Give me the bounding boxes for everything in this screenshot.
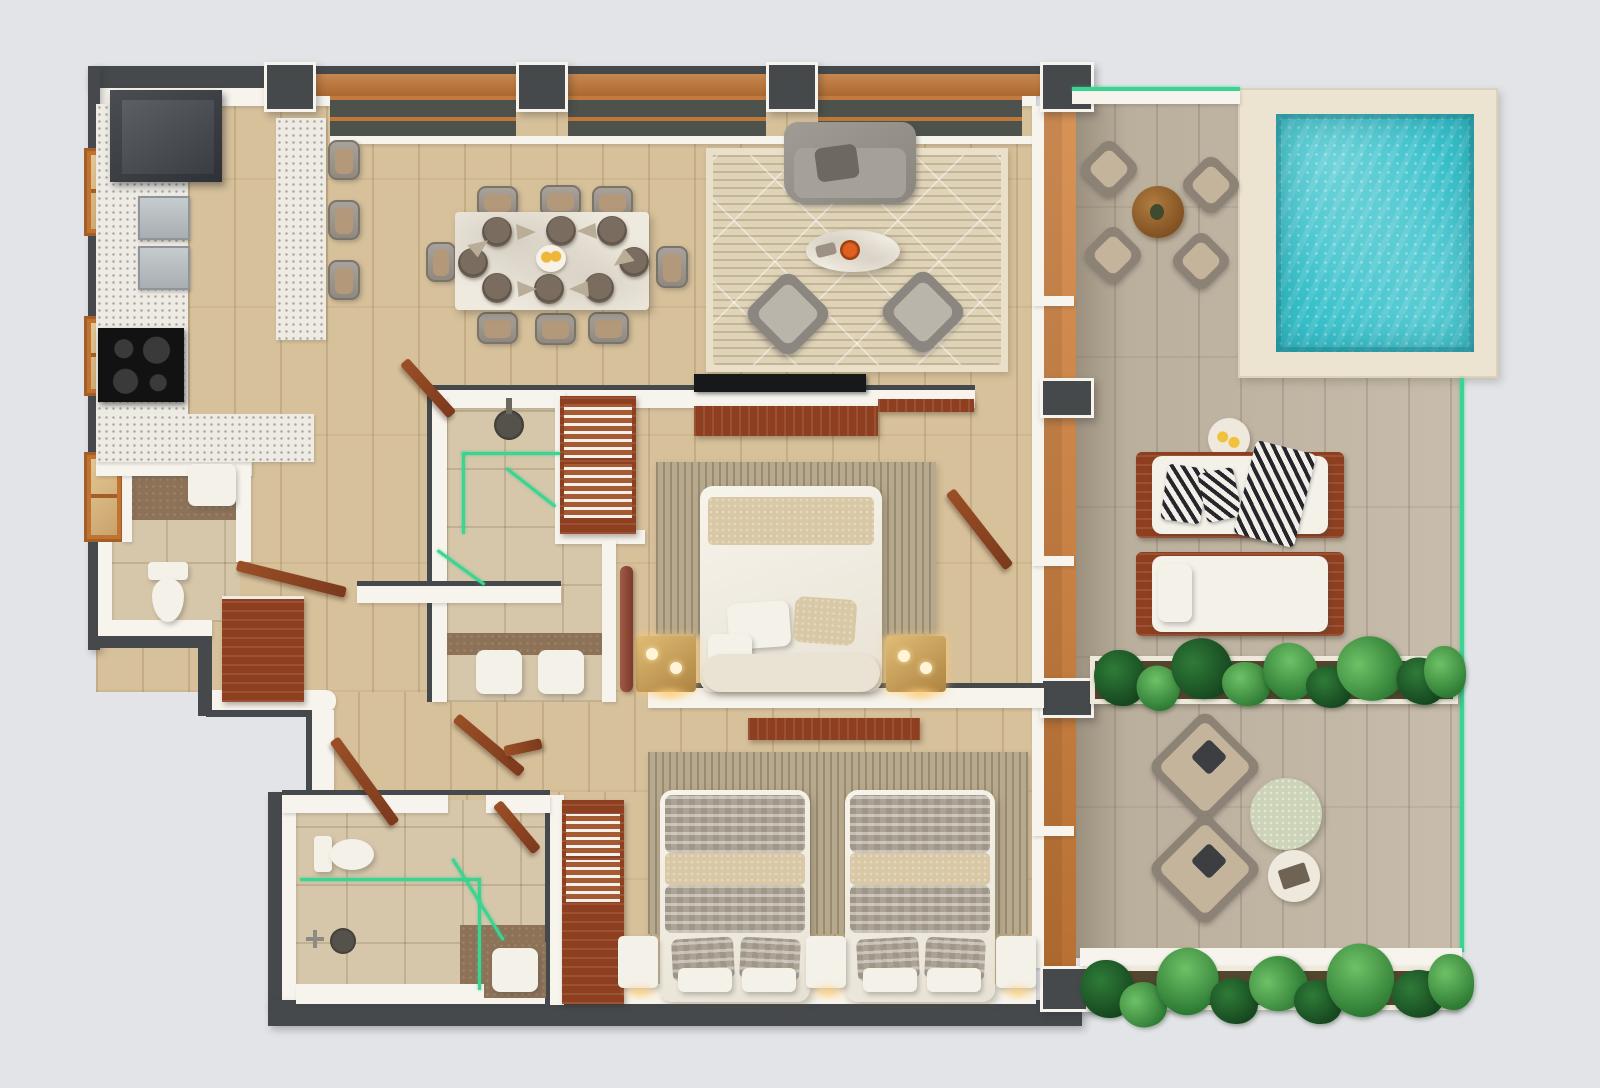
nightstand-lamp xyxy=(806,936,846,988)
wall-bath2-left-inner xyxy=(282,798,296,1002)
shower-head xyxy=(494,410,524,440)
lamp-glow xyxy=(808,984,848,1000)
floor-plan-render xyxy=(0,0,1600,1088)
twin-bed-cushion xyxy=(678,968,732,992)
dining-chair xyxy=(426,242,456,282)
vanity-sink xyxy=(476,650,522,694)
master-bed-throw xyxy=(708,497,874,545)
place-setting xyxy=(534,274,564,304)
divider-transom-1 xyxy=(1032,296,1074,306)
dining-chair xyxy=(535,313,576,345)
bath2-glass xyxy=(478,878,481,990)
wall-powder-bottom-edge xyxy=(88,636,212,648)
bath2-glass xyxy=(300,878,480,881)
twin-bed-duvet xyxy=(850,885,990,933)
wall-hall-left xyxy=(312,710,334,798)
twin-bed-duvet xyxy=(850,795,990,853)
terrace-building-shadow xyxy=(1076,92,1128,958)
wardrobe-clothes xyxy=(566,860,620,902)
terrace-edge-top xyxy=(1072,91,1240,104)
dining-chair xyxy=(477,312,518,344)
cooktop xyxy=(98,328,184,402)
divider-white-frame xyxy=(1032,106,1044,968)
bedroom2-tv-board xyxy=(748,718,920,740)
wardrobe-clothes xyxy=(564,464,632,518)
twin-bed-cushion xyxy=(927,968,981,992)
lamp-glow xyxy=(998,984,1038,1000)
plant xyxy=(1428,954,1474,1010)
vanity-sink xyxy=(538,650,584,694)
kitchen-dishwasher-module xyxy=(138,246,190,290)
wall-vanity-top xyxy=(357,586,561,603)
pillar-top-3 xyxy=(766,62,818,112)
pillar-divider-mid2 xyxy=(1040,678,1094,718)
twin-bed-throw xyxy=(850,853,990,885)
bar-stool xyxy=(328,140,360,180)
twin-bed-duvet xyxy=(665,795,805,853)
nightstand-lamp xyxy=(618,936,658,988)
wall-vanity-right xyxy=(602,540,616,702)
place-setting xyxy=(597,216,627,246)
kitchen-island xyxy=(276,118,326,340)
wall-bath2-left xyxy=(268,792,282,1008)
master-pillow-beige xyxy=(792,596,857,646)
bath2-faucet xyxy=(306,930,324,948)
lounger-pillow xyxy=(1158,564,1192,622)
tv xyxy=(694,374,866,392)
powder-sink xyxy=(188,464,236,506)
twin-bed-cushion xyxy=(742,968,796,992)
divider-transom-2 xyxy=(1032,556,1074,566)
place-setting xyxy=(458,248,488,278)
pillar-top-2 xyxy=(516,62,568,112)
wall-bath-left xyxy=(432,396,447,702)
shower-glass xyxy=(462,452,465,534)
pool-water xyxy=(1276,114,1474,352)
shower-glass xyxy=(462,452,560,455)
lamp-glow xyxy=(620,984,660,1000)
glazing-sill xyxy=(330,136,1036,144)
table-centerpiece xyxy=(536,245,566,272)
pillar-top-1 xyxy=(264,62,316,112)
place-setting xyxy=(482,273,512,303)
dining-chair xyxy=(588,312,629,344)
bar-stool xyxy=(328,200,360,240)
wardrobe-clothes xyxy=(566,814,620,856)
wall-powder-right xyxy=(236,460,251,562)
twin-bed-duvet xyxy=(665,885,805,933)
divider-transom-3 xyxy=(1032,826,1074,836)
wardrobe-clothes xyxy=(564,404,632,458)
wall-step-vertical xyxy=(198,636,212,716)
plant xyxy=(1424,646,1466,698)
lamp-glow xyxy=(648,686,692,702)
twin-bed-cushion xyxy=(863,968,917,992)
divider-door-panel xyxy=(1044,96,1062,968)
bath2-toilet-bowl xyxy=(330,839,374,870)
twin-bed-throw xyxy=(665,853,805,885)
gold-table-lamp xyxy=(636,636,696,692)
stone-side-table xyxy=(1250,778,1322,850)
floor-lamp xyxy=(620,566,633,692)
glazing-bay-1 xyxy=(330,96,516,138)
divider-beam xyxy=(1062,96,1076,968)
bath2-sink xyxy=(492,948,538,992)
wall-bath2-top-a xyxy=(282,795,448,813)
kitchen-sink-module xyxy=(138,196,190,240)
shower-arm xyxy=(506,398,512,414)
pillar-divider-mid1 xyxy=(1040,378,1094,418)
bath2-shower-head xyxy=(330,928,356,954)
nightstand-lamp xyxy=(996,936,1036,988)
hall-cabinet xyxy=(222,596,304,702)
lamp-glow xyxy=(898,686,942,702)
bar-stool xyxy=(328,260,360,300)
bistro-table-item xyxy=(1150,204,1164,220)
wall-shelf xyxy=(878,399,974,412)
kitchen-counter-leg xyxy=(96,414,314,462)
pergola-beam-top xyxy=(316,74,1040,96)
tv-console xyxy=(694,406,878,436)
place-setting xyxy=(546,216,576,246)
fruit-bowl xyxy=(840,240,860,260)
bed-bench xyxy=(702,654,880,692)
dining-chair xyxy=(656,246,688,288)
gold-table-lamp xyxy=(886,636,946,692)
place-setting xyxy=(584,273,614,303)
glazing-bay-2 xyxy=(568,96,766,138)
refrigerator-door xyxy=(122,100,214,174)
sofa-cushion xyxy=(814,143,860,183)
